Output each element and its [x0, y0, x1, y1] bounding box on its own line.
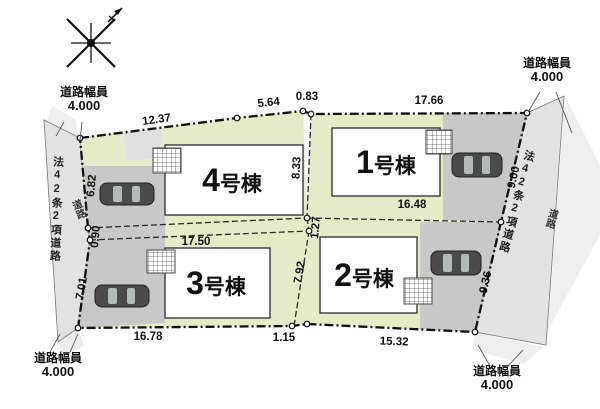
car-icon: [452, 153, 502, 177]
dim-bottom-2: 1.15: [273, 332, 296, 344]
road-width-marker-top-right: 道路幅員 4.000: [505, 57, 589, 85]
road-width-value: 4.000: [16, 365, 100, 380]
dim-inner-1750: 17.50: [182, 236, 211, 248]
dim-inner-1648: 16.48: [398, 199, 427, 211]
road-width-label: 道路幅員: [455, 365, 539, 378]
road-width-marker-bottom-left: 道路幅員 4.000: [16, 352, 100, 380]
entrance-hatch-icon: [404, 278, 432, 304]
car-icon: [95, 285, 149, 307]
car-icon: [100, 183, 154, 205]
car-icon: [431, 251, 481, 275]
dim-inner-833: 8.33: [290, 156, 303, 179]
dim-inner-127: 1.27: [309, 216, 323, 239]
road-width-value: 4.000: [42, 99, 126, 114]
entrance-hatch-icon: [153, 148, 181, 173]
road-width-label: 道路幅員: [42, 86, 126, 99]
road-width-label: 道路幅員: [16, 352, 100, 365]
entrance-hatch-icon: [147, 250, 175, 273]
left-road-name: 法42条2項道路: [48, 156, 63, 263]
north-arrow-icon: [67, 8, 122, 67]
dim-top-4: 17.66: [415, 95, 444, 107]
dim-top-3: 0.83: [296, 91, 318, 103]
road-width-value: 4.000: [505, 70, 589, 85]
dim-left-1: 6.82: [85, 174, 99, 197]
road-width-label: 道路幅員: [505, 57, 589, 70]
dim-bottom-3: 15.32: [380, 336, 409, 349]
road-width-marker-bottom-right: 道路幅員 4.000: [455, 365, 539, 393]
road-width-marker-top-left: 道路幅員 4.000: [42, 86, 126, 114]
dim-top-1: 12.37: [141, 112, 171, 128]
road-width-value: 4.000: [455, 378, 539, 393]
dim-bottom-1: 16.78: [134, 331, 163, 343]
entrance-hatch-icon: [426, 130, 452, 154]
dim-left-2: 0.90: [89, 225, 103, 248]
dim-top-2: 5.64: [257, 96, 281, 110]
site-plan: 12.37 5.64 0.83 17.66 9.00 9.36 16.78 1.…: [0, 0, 600, 409]
